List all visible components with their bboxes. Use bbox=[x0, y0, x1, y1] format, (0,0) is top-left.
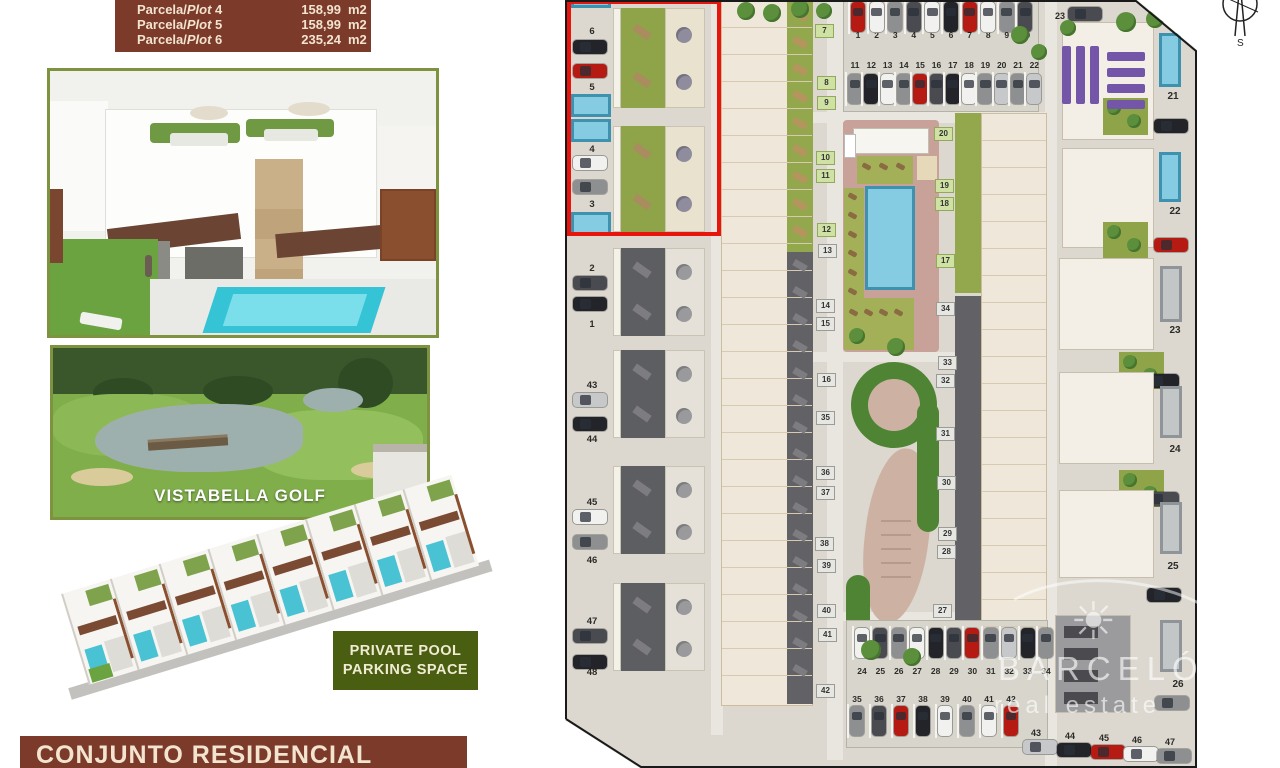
plot-tag: 35 bbox=[816, 411, 835, 425]
plot-number: 13 bbox=[879, 60, 897, 70]
plot-tag: 20 bbox=[934, 127, 953, 141]
car-windshield bbox=[949, 634, 960, 642]
car-icon bbox=[907, 2, 921, 32]
parking-slot-line bbox=[869, 704, 871, 738]
page: Parcela/Plot 4158,99m2Parcela/Plot 5158,… bbox=[0, 0, 1280, 768]
parking-slot-line bbox=[1001, 704, 1003, 738]
car-icon bbox=[1147, 588, 1181, 602]
parking-slot-line bbox=[959, 72, 961, 106]
garden-lounger bbox=[632, 303, 651, 320]
banner-title: CONJUNTO RESIDENCIAL bbox=[36, 741, 372, 768]
plot-number: 31 bbox=[982, 666, 1000, 676]
tree-icon bbox=[1146, 10, 1164, 28]
car-windshield bbox=[580, 512, 590, 523]
roof-garden bbox=[232, 539, 260, 561]
car-windshield bbox=[1041, 634, 1052, 642]
car-icon bbox=[848, 74, 862, 104]
pool-gray bbox=[1160, 386, 1182, 438]
car-icon bbox=[851, 2, 865, 32]
car-icon bbox=[1057, 743, 1091, 757]
plot-tag: 9 bbox=[817, 96, 836, 110]
lake bbox=[303, 388, 363, 412]
car-windshield bbox=[1001, 8, 1012, 16]
plot-number: 35 bbox=[848, 694, 866, 704]
awning bbox=[272, 555, 313, 575]
legend-unit: m2 bbox=[341, 17, 367, 32]
plot-tag: 34 bbox=[936, 302, 955, 316]
car-icon bbox=[995, 74, 1009, 104]
car-windshield bbox=[580, 631, 590, 642]
parking-slot-line bbox=[878, 72, 880, 106]
roof-sofa bbox=[264, 129, 318, 141]
car-icon bbox=[1002, 628, 1016, 658]
car-windshield bbox=[853, 8, 864, 16]
plot-tag: 32 bbox=[936, 374, 955, 388]
unit-divider bbox=[722, 675, 812, 676]
parking-slot-line bbox=[975, 72, 977, 106]
pergola-bar bbox=[1107, 68, 1145, 77]
awning bbox=[370, 526, 411, 546]
legend-unit: m2 bbox=[341, 2, 367, 17]
unit-divider bbox=[722, 486, 812, 487]
villa-garden bbox=[621, 350, 665, 438]
parking-slot-line bbox=[957, 704, 959, 738]
plot-tag: 14 bbox=[816, 299, 835, 313]
unit-divider bbox=[722, 351, 812, 352]
roof-bar bbox=[1064, 692, 1098, 704]
car-windshield bbox=[967, 634, 978, 642]
car-windshield bbox=[1030, 742, 1040, 753]
car-windshield bbox=[1161, 240, 1171, 251]
car-windshield bbox=[866, 80, 877, 88]
car-windshield bbox=[931, 80, 942, 88]
unit-divider bbox=[722, 297, 812, 298]
unit-divider bbox=[722, 108, 812, 109]
unit-divider bbox=[722, 459, 812, 460]
villa-block bbox=[613, 350, 705, 438]
car-icon bbox=[984, 628, 998, 658]
car-icon bbox=[981, 2, 995, 32]
legend-label: Parcela/Plot 6 bbox=[115, 32, 295, 47]
awning bbox=[126, 600, 167, 620]
plot-tag: 19 bbox=[935, 179, 954, 193]
car-windshield bbox=[896, 712, 907, 720]
car-icon bbox=[897, 74, 911, 104]
villa-patio bbox=[665, 350, 705, 438]
compass-rose: S E O bbox=[1202, 0, 1278, 50]
villas-row-render bbox=[0, 440, 560, 740]
car-windshield bbox=[1022, 634, 1033, 642]
roof-bar bbox=[1064, 648, 1098, 660]
pool-gray bbox=[1160, 620, 1182, 672]
plot-number: 22 bbox=[1166, 206, 1184, 217]
unit-divider bbox=[982, 221, 1046, 222]
plot-number: 17 bbox=[944, 60, 962, 70]
car-windshield bbox=[947, 80, 958, 88]
plot-number: 36 bbox=[870, 694, 888, 704]
parking-slot-line bbox=[861, 72, 863, 106]
villa-garden bbox=[621, 583, 665, 671]
tree-icon bbox=[1031, 44, 1047, 60]
tree-icon bbox=[903, 648, 921, 666]
unit-divider bbox=[722, 378, 812, 379]
plot-number: 45 bbox=[583, 497, 601, 508]
tree-icon bbox=[791, 0, 809, 18]
parking-slot-line bbox=[944, 626, 946, 660]
unit-divider bbox=[722, 621, 812, 622]
car-windshield bbox=[1131, 749, 1141, 760]
awning bbox=[175, 585, 216, 605]
garden-lounger bbox=[632, 405, 651, 422]
plot-number: 12 bbox=[862, 60, 880, 70]
stone-pillar bbox=[255, 159, 303, 299]
plot-number: 20 bbox=[993, 60, 1011, 70]
plot-number: 26 bbox=[1169, 679, 1187, 690]
legend-label: Parcela/Plot 4 bbox=[115, 2, 295, 17]
parking-slot-line bbox=[891, 704, 893, 738]
tree-icon bbox=[861, 640, 881, 660]
villa-patio bbox=[665, 248, 705, 336]
car-icon bbox=[1011, 74, 1025, 104]
car-windshield bbox=[912, 634, 923, 642]
park-stairs bbox=[881, 534, 911, 536]
plot-number: 25 bbox=[871, 666, 889, 676]
unit-divider bbox=[722, 162, 812, 163]
parking-slot-line bbox=[941, 0, 943, 34]
plot-number: 14 bbox=[895, 60, 913, 70]
car-icon bbox=[881, 74, 895, 104]
parking-slot-line bbox=[962, 626, 964, 660]
car-windshield bbox=[1161, 121, 1171, 132]
car-icon bbox=[573, 393, 607, 407]
car-windshield bbox=[918, 712, 929, 720]
unit-divider bbox=[722, 648, 812, 649]
plot-number: 25 bbox=[1164, 561, 1182, 572]
park-stairs bbox=[881, 548, 911, 550]
car-windshield bbox=[1006, 712, 1017, 720]
car-windshield bbox=[874, 712, 885, 720]
unit-divider bbox=[722, 216, 812, 217]
villa-house bbox=[1059, 490, 1154, 578]
car-windshield bbox=[1013, 80, 1024, 88]
legend-row: Parcela/Plot 5158,99m2 bbox=[115, 17, 371, 32]
car-icon bbox=[573, 297, 607, 311]
plot-number: 37 bbox=[892, 694, 910, 704]
plot-tag: 8 bbox=[817, 76, 836, 90]
plot-number: 19 bbox=[976, 60, 994, 70]
car-windshield bbox=[1098, 747, 1108, 758]
plot-tag: 33 bbox=[938, 356, 957, 370]
plot-number: 21 bbox=[1009, 60, 1027, 70]
siteplan: 6543214344454647487891011121314151635363… bbox=[565, 0, 1197, 768]
plot-number: 39 bbox=[936, 694, 954, 704]
park-stairs bbox=[881, 520, 911, 522]
unit-divider bbox=[982, 437, 1046, 438]
villa-garden bbox=[621, 248, 665, 336]
unit-divider bbox=[722, 54, 812, 55]
plot-number: 34 bbox=[1037, 666, 1055, 676]
parking-slot-line bbox=[927, 72, 929, 106]
car-icon bbox=[963, 2, 977, 32]
car-icon bbox=[1004, 706, 1018, 736]
umbrella bbox=[288, 102, 330, 116]
car-windshield bbox=[580, 395, 590, 406]
unit-divider bbox=[982, 599, 1046, 600]
villa-block bbox=[613, 583, 705, 671]
roof-garden bbox=[134, 569, 162, 591]
unit-divider bbox=[982, 329, 1046, 330]
car-icon bbox=[573, 655, 607, 669]
unit-divider bbox=[722, 540, 812, 541]
parking-slot-line bbox=[1018, 626, 1020, 660]
parking-slot-line bbox=[894, 72, 896, 106]
car-icon bbox=[1027, 74, 1041, 104]
parking-slot-line bbox=[922, 0, 924, 34]
unit-divider bbox=[722, 189, 812, 190]
car-icon bbox=[573, 276, 607, 290]
car-windshield bbox=[1164, 751, 1174, 762]
roof-garden bbox=[378, 494, 406, 516]
plot-number: 26 bbox=[890, 666, 908, 676]
plot-tag: 16 bbox=[817, 373, 836, 387]
plot-number: 28 bbox=[927, 666, 945, 676]
pool-deck bbox=[917, 156, 937, 180]
tree-icon bbox=[1123, 473, 1137, 487]
unit-divider bbox=[982, 275, 1046, 276]
plot-number: 23 bbox=[1166, 325, 1184, 336]
plot-number: 42 bbox=[1002, 694, 1020, 704]
plot-number: 29 bbox=[945, 666, 963, 676]
car-windshield bbox=[984, 712, 995, 720]
unit-divider bbox=[982, 383, 1046, 384]
car-icon bbox=[978, 74, 992, 104]
parking-slot-line bbox=[852, 626, 854, 660]
legend-label: Parcela/Plot 5 bbox=[115, 17, 295, 32]
banner: CONJUNTO RESIDENCIAL bbox=[20, 736, 467, 768]
car-windshield bbox=[1004, 634, 1015, 642]
unit-divider bbox=[722, 594, 812, 595]
feature-line-1: PRIVATE POOL bbox=[333, 642, 478, 661]
car-icon bbox=[925, 2, 939, 32]
car-windshield bbox=[930, 634, 941, 642]
villa-house bbox=[1059, 372, 1154, 464]
car-windshield bbox=[964, 80, 975, 88]
villa-house bbox=[1055, 615, 1131, 713]
plot-tag: 12 bbox=[817, 223, 836, 237]
pergola-bar bbox=[1090, 46, 1099, 104]
parking-slot-line bbox=[845, 72, 847, 106]
patio-tree-icon bbox=[676, 599, 692, 615]
villa-edge bbox=[613, 350, 621, 438]
car-icon bbox=[573, 535, 607, 549]
garden-strip-gray bbox=[955, 296, 981, 646]
car-icon bbox=[982, 706, 996, 736]
unit-divider bbox=[982, 410, 1046, 411]
parking-slot-line bbox=[978, 0, 980, 34]
tree-canopy bbox=[203, 376, 273, 406]
legend-area: 235,24 bbox=[295, 32, 341, 47]
legend-area: 158,99 bbox=[295, 2, 341, 17]
unit-divider bbox=[722, 432, 812, 433]
car-icon bbox=[962, 74, 976, 104]
car-icon bbox=[916, 706, 930, 736]
plot-number: 43 bbox=[583, 380, 601, 391]
car-windshield bbox=[580, 657, 590, 668]
unit-divider bbox=[722, 513, 812, 514]
parking-slot-line bbox=[1008, 72, 1010, 106]
car-icon bbox=[946, 74, 960, 104]
villa-edge bbox=[613, 248, 621, 336]
parking-slot-line bbox=[1024, 72, 1026, 106]
pool-water bbox=[223, 294, 367, 326]
tree-icon bbox=[849, 328, 865, 344]
villa-block bbox=[613, 248, 705, 336]
unit-divider bbox=[982, 491, 1046, 492]
villa-patio bbox=[665, 466, 705, 554]
plot-number: 40 bbox=[958, 694, 976, 704]
car-windshield bbox=[908, 8, 919, 16]
car-icon bbox=[1068, 7, 1102, 21]
plot-number: 43 bbox=[1027, 728, 1045, 738]
car-icon bbox=[573, 510, 607, 524]
plot-number: 11 bbox=[846, 60, 864, 70]
plot-number: 30 bbox=[963, 666, 981, 676]
plot-number: 45 bbox=[1095, 733, 1113, 743]
car-icon bbox=[872, 706, 886, 736]
plot-legend: Parcela/Plot 4158,99m2Parcela/Plot 5158,… bbox=[115, 0, 371, 52]
car-windshield bbox=[940, 712, 951, 720]
car-icon bbox=[1154, 119, 1188, 133]
roof-sofa bbox=[170, 133, 228, 146]
plot-tag: 42 bbox=[816, 684, 835, 698]
car-icon bbox=[1091, 745, 1125, 759]
car-windshield bbox=[850, 80, 861, 88]
car-icon bbox=[1154, 238, 1188, 252]
car-icon bbox=[1155, 696, 1189, 710]
garden-lounger bbox=[632, 638, 651, 655]
car-icon bbox=[947, 628, 961, 658]
parking-slot-line bbox=[992, 72, 994, 106]
plot-number: 2 bbox=[583, 263, 601, 274]
car-icon bbox=[1039, 628, 1053, 658]
villa-patio bbox=[665, 583, 705, 671]
plot-tag: 13 bbox=[818, 244, 837, 258]
plot-tag: 28 bbox=[937, 545, 956, 559]
villa-garden bbox=[1103, 222, 1148, 259]
tree-icon bbox=[1060, 20, 1076, 36]
car-windshield bbox=[871, 8, 882, 16]
parking-slot-line bbox=[981, 626, 983, 660]
garden-lounger bbox=[632, 521, 651, 538]
unit-divider bbox=[982, 545, 1046, 546]
car-icon bbox=[1021, 628, 1035, 658]
car-windshield bbox=[580, 299, 590, 310]
car-windshield bbox=[580, 278, 590, 289]
car-windshield bbox=[1154, 590, 1164, 601]
plot-tag: 30 bbox=[937, 476, 956, 490]
unit-divider bbox=[982, 140, 1046, 141]
car-icon bbox=[888, 2, 902, 32]
unit-divider bbox=[722, 405, 812, 406]
pool-kiosk bbox=[844, 134, 856, 158]
unit-divider bbox=[722, 243, 812, 244]
legend-row: Parcela/Plot 6235,24m2 bbox=[115, 32, 371, 47]
car-icon bbox=[864, 74, 878, 104]
unit-divider bbox=[982, 464, 1046, 465]
roof-garden bbox=[183, 554, 211, 576]
villa-render-photo bbox=[47, 68, 439, 338]
car-windshield bbox=[980, 80, 991, 88]
legend-unit: m2 bbox=[341, 32, 367, 47]
tree-icon bbox=[887, 338, 905, 356]
plot-tag: 17 bbox=[936, 254, 955, 268]
plot-number: 16 bbox=[928, 60, 946, 70]
parking-slot-line bbox=[926, 626, 928, 660]
parking-slot-line bbox=[885, 0, 887, 34]
unit-divider bbox=[982, 518, 1046, 519]
plot-tag: 29 bbox=[938, 527, 957, 541]
feature-box: PRIVATE POOL PARKING SPACE bbox=[333, 631, 478, 690]
unit-divider bbox=[722, 324, 812, 325]
plot-tag: 39 bbox=[817, 559, 836, 573]
villa-block bbox=[613, 466, 705, 554]
park-hedge bbox=[917, 402, 939, 532]
patio-tree-icon bbox=[676, 641, 692, 657]
plot-tag: 27 bbox=[933, 604, 952, 618]
plot-tag: 37 bbox=[816, 486, 835, 500]
tree-icon bbox=[1011, 26, 1029, 44]
roof-garden bbox=[427, 479, 455, 501]
patio-tree-icon bbox=[676, 524, 692, 540]
car-windshield bbox=[1020, 8, 1031, 16]
legend-area: 158,99 bbox=[295, 17, 341, 32]
plot-tag: 15 bbox=[816, 317, 835, 331]
umbrella bbox=[190, 106, 228, 120]
pergola-bar bbox=[1107, 84, 1145, 93]
unit-divider bbox=[722, 567, 812, 568]
parking-slot-line bbox=[847, 704, 849, 738]
unit-divider bbox=[982, 248, 1046, 249]
parking-slot-line bbox=[999, 626, 1001, 660]
tree-icon bbox=[763, 4, 781, 22]
car-windshield bbox=[1162, 698, 1172, 709]
awning bbox=[419, 511, 460, 531]
roof-garden bbox=[280, 524, 308, 546]
highlight-box bbox=[567, 0, 721, 236]
plot-tag: 31 bbox=[936, 427, 955, 441]
unit-divider bbox=[722, 81, 812, 82]
tree-icon bbox=[1123, 355, 1137, 369]
tree-icon bbox=[1116, 12, 1136, 32]
garden-lounger bbox=[632, 363, 651, 380]
patio-tree-icon bbox=[676, 482, 692, 498]
awning bbox=[321, 540, 362, 560]
plot-number: 21 bbox=[1164, 91, 1182, 102]
private-pool bbox=[1159, 152, 1181, 202]
plot-number: 46 bbox=[1128, 735, 1146, 745]
compass-south: S bbox=[1237, 38, 1244, 49]
plot-number: 1 bbox=[583, 319, 601, 330]
car-windshield bbox=[852, 712, 863, 720]
awning bbox=[77, 615, 118, 635]
plot-number: 22 bbox=[1025, 60, 1043, 70]
unit-divider bbox=[722, 270, 812, 271]
roof-garden bbox=[329, 509, 357, 531]
car-windshield bbox=[1075, 9, 1085, 20]
park-plaza bbox=[868, 379, 920, 431]
car-windshield bbox=[890, 8, 901, 16]
unit-divider bbox=[722, 135, 812, 136]
